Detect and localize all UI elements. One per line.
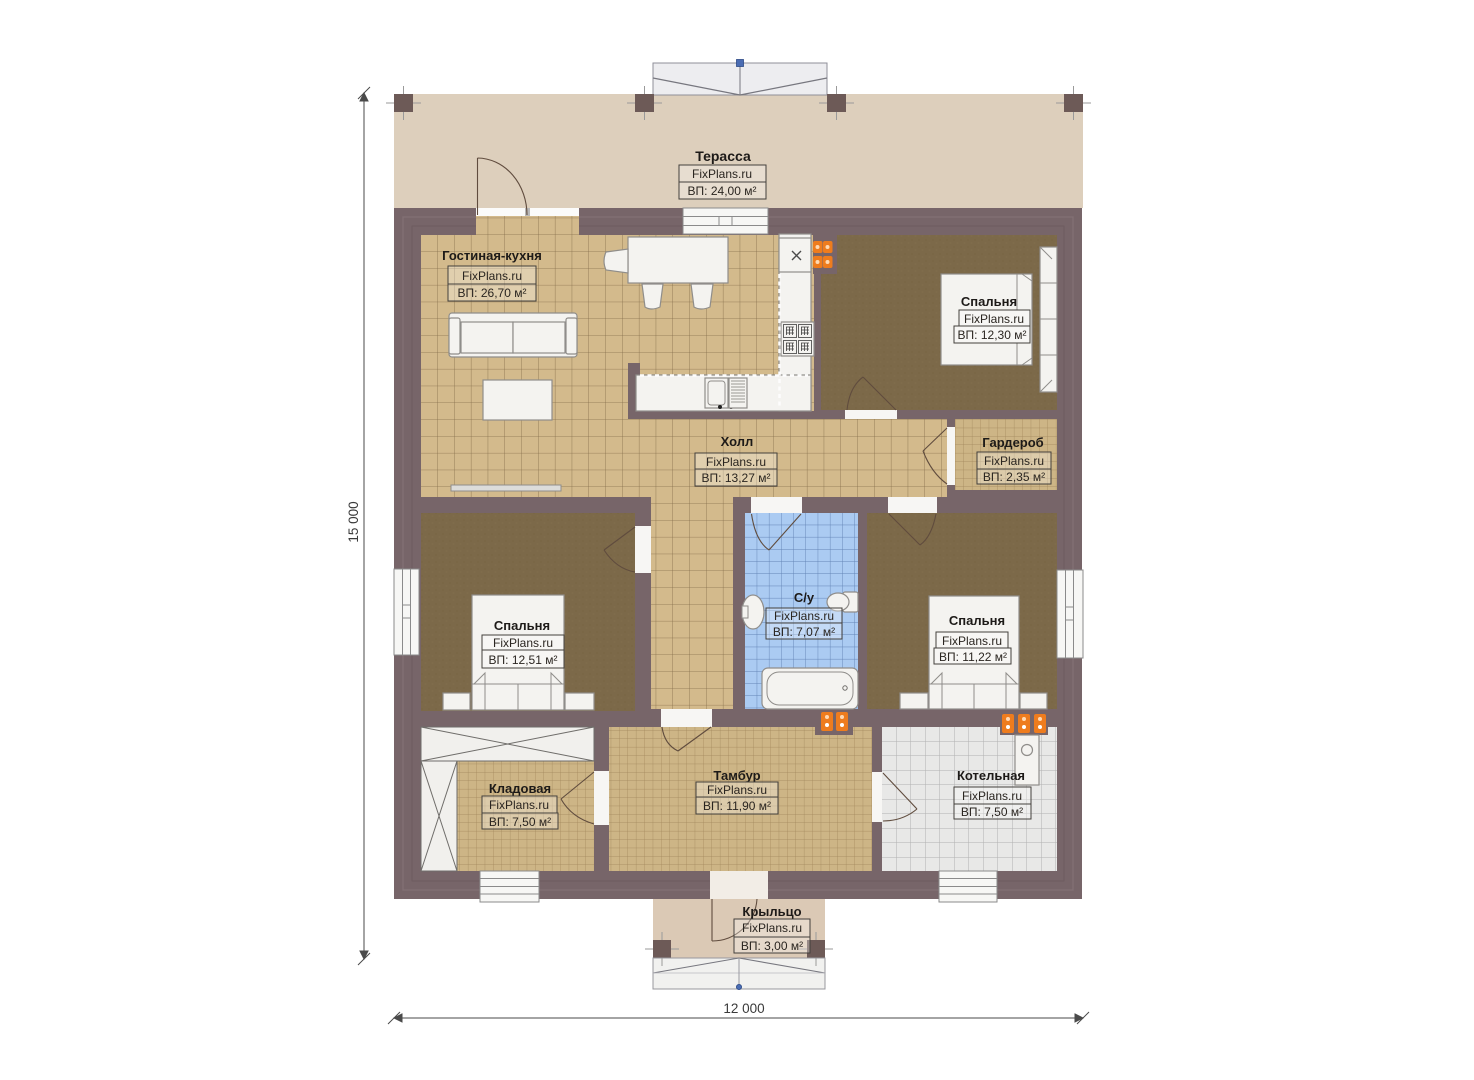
svg-text:Гостиная-кухня: Гостиная-кухня: [442, 248, 542, 263]
svg-text:ВП: 24,00 м²: ВП: 24,00 м²: [688, 184, 757, 198]
svg-text:ВП: 11,90 м²: ВП: 11,90 м²: [703, 799, 771, 813]
svg-text:ВП: 11,22 м²: ВП: 11,22 м²: [939, 650, 1007, 664]
svg-text:Терасса: Терасса: [695, 148, 751, 164]
svg-text:FixPlans.ru: FixPlans.ru: [489, 798, 549, 812]
svg-text:ВП: 7,50 м²: ВП: 7,50 м²: [489, 815, 551, 829]
svg-text:FixPlans.ru: FixPlans.ru: [774, 609, 834, 623]
svg-text:FixPlans.ru: FixPlans.ru: [493, 636, 553, 650]
svg-text:15 000: 15 000: [346, 501, 361, 542]
svg-text:ВП: 2,35 м²: ВП: 2,35 м²: [983, 470, 1045, 484]
svg-text:С/у: С/у: [794, 590, 815, 605]
svg-text:ВП: 3,00 м²: ВП: 3,00 м²: [741, 939, 803, 953]
svg-text:ВП: 7,07 м²: ВП: 7,07 м²: [773, 625, 835, 639]
svg-text:ВП: 7,50 м²: ВП: 7,50 м²: [961, 805, 1023, 819]
svg-text:Спальня: Спальня: [961, 294, 1017, 309]
svg-text:Кладовая: Кладовая: [489, 781, 551, 796]
svg-text:ВП: 26,70 м²: ВП: 26,70 м²: [458, 286, 527, 300]
svg-text:ВП: 12,30 м²: ВП: 12,30 м²: [958, 328, 1027, 342]
svg-text:ВП: 13,27 м²: ВП: 13,27 м²: [702, 471, 771, 485]
svg-text:ВП: 12,51 м²: ВП: 12,51 м²: [489, 653, 558, 667]
svg-text:Спальня: Спальня: [494, 618, 550, 633]
svg-text:FixPlans.ru: FixPlans.ru: [984, 454, 1044, 468]
svg-text:Крыльцо: Крыльцо: [742, 904, 801, 919]
svg-text:Котельная: Котельная: [957, 768, 1025, 783]
svg-text:FixPlans.ru: FixPlans.ru: [742, 921, 802, 935]
svg-text:Холл: Холл: [721, 434, 754, 449]
svg-text:FixPlans.ru: FixPlans.ru: [706, 455, 766, 469]
svg-text:12 000: 12 000: [723, 1001, 764, 1016]
svg-text:Гардероб: Гардероб: [982, 435, 1043, 450]
svg-text:FixPlans.ru: FixPlans.ru: [942, 634, 1002, 648]
svg-text:Спальня: Спальня: [949, 613, 1005, 628]
svg-text:FixPlans.ru: FixPlans.ru: [964, 312, 1024, 326]
svg-text:FixPlans.ru: FixPlans.ru: [462, 269, 522, 283]
svg-text:FixPlans.ru: FixPlans.ru: [707, 783, 767, 797]
svg-text:FixPlans.ru: FixPlans.ru: [962, 789, 1022, 803]
svg-text:Тамбур: Тамбур: [713, 768, 760, 783]
svg-text:FixPlans.ru: FixPlans.ru: [692, 167, 752, 181]
